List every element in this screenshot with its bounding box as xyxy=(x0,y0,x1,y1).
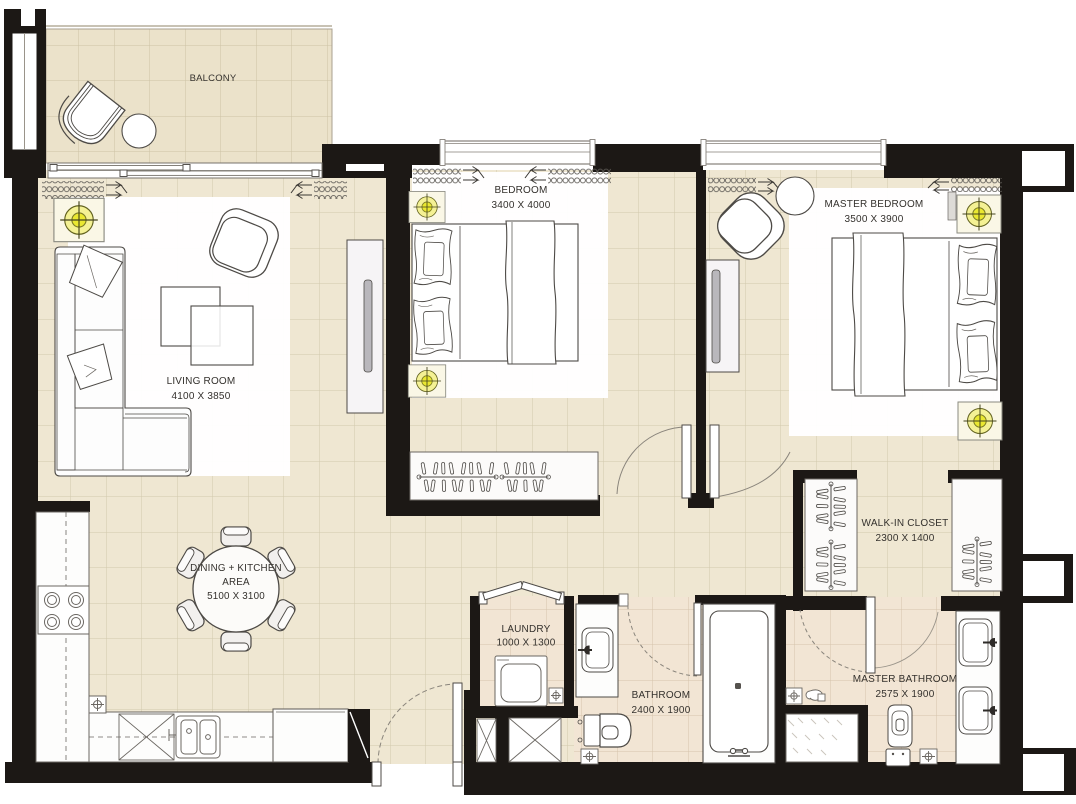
svg-text:MASTER BEDROOM: MASTER BEDROOM xyxy=(825,199,924,210)
svg-text:WALK-IN CLOSET: WALK-IN CLOSET xyxy=(862,518,949,529)
svg-text:BEDROOM: BEDROOM xyxy=(494,185,547,196)
svg-text:2300 X 1400: 2300 X 1400 xyxy=(876,533,935,544)
svg-text:1000 X 1300: 1000 X 1300 xyxy=(497,638,556,649)
svg-text:4100 X 3850: 4100 X 3850 xyxy=(172,391,231,402)
svg-text:2400 X 1900: 2400 X 1900 xyxy=(632,705,691,716)
svg-text:BALCONY: BALCONY xyxy=(190,73,237,84)
svg-text:MASTER BATHROOM: MASTER BATHROOM xyxy=(853,674,957,685)
svg-text:5100 X 3100: 5100 X 3100 xyxy=(207,591,265,602)
svg-text:AREA: AREA xyxy=(222,577,250,588)
svg-text:DINING + KITCHEN: DINING + KITCHEN xyxy=(190,563,282,574)
svg-text:LIVING ROOM: LIVING ROOM xyxy=(167,376,236,387)
svg-text:3500 X 3900: 3500 X 3900 xyxy=(845,214,904,225)
svg-text:BATHROOM: BATHROOM xyxy=(632,690,691,701)
svg-text:3400 X 4000: 3400 X 4000 xyxy=(492,200,551,211)
svg-text:2575 X 1900: 2575 X 1900 xyxy=(876,689,935,700)
svg-text:LAUNDRY: LAUNDRY xyxy=(501,624,550,635)
